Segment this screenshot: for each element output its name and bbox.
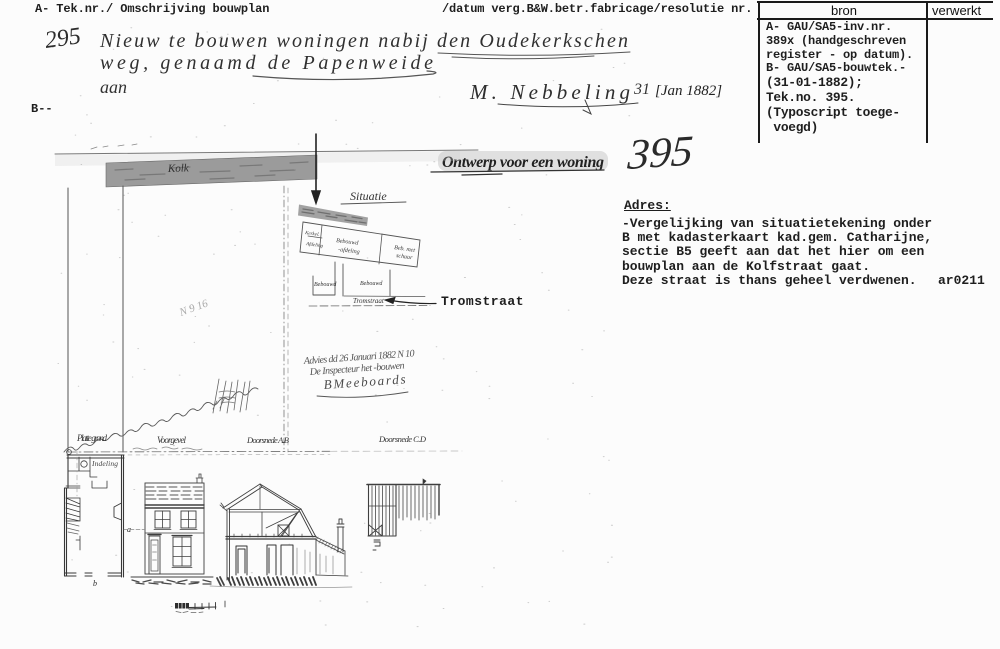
svg-text:Afdeling: Afdeling [305,242,324,250]
svg-text:395: 395 [625,127,694,179]
svg-text:Nieuw te bouwen woningen nabij: Nieuw te bouwen woningen nabij den Oudek… [99,30,628,52]
svg-text:31: 31 [633,81,650,98]
svg-text:M. Nebbeling: M. Nebbeling [469,80,630,104]
svg-text:[Jan 1882]: [Jan 1882] [655,83,722,99]
svg-text:b: b [93,579,97,588]
svg-text:Bebouwd: Bebouwd [314,282,337,288]
svg-text:N 9 16: N 9 16 [177,297,210,319]
svg-text:295: 295 [43,23,82,54]
svg-text:Platte grond: Platte grond [76,433,108,443]
svg-text:Doorsnede A.B: Doorsnede A.B [246,435,289,445]
svg-text:weg, genaamd de Papenweide: weg, genaamd de Papenweide [100,52,433,74]
svg-text:Bebouwd: Bebouwd [336,238,360,247]
svg-text:Indeling: Indeling [91,459,118,468]
svg-text:Situatie: Situatie [350,189,387,203]
svg-text:schuur: schuur [396,253,414,261]
svg-text:-afdeling: -afdeling [338,246,360,256]
svg-text:Bebouwd: Bebouwd [360,281,383,287]
svg-text:Kerkel.: Kerkel. [304,231,320,238]
svg-text:Ontwerp voor een woning: Ontwerp voor een woning [442,154,604,171]
svg-text:Doorsnede C.D: Doorsnede C.D [378,434,427,444]
svg-text:Voorgevel: Voorgevel [157,435,186,445]
svg-text:Tromstraat: Tromstraat [353,297,385,305]
svg-text:aan: aan [100,77,127,97]
svg-text:Kolk: Kolk [167,162,190,175]
